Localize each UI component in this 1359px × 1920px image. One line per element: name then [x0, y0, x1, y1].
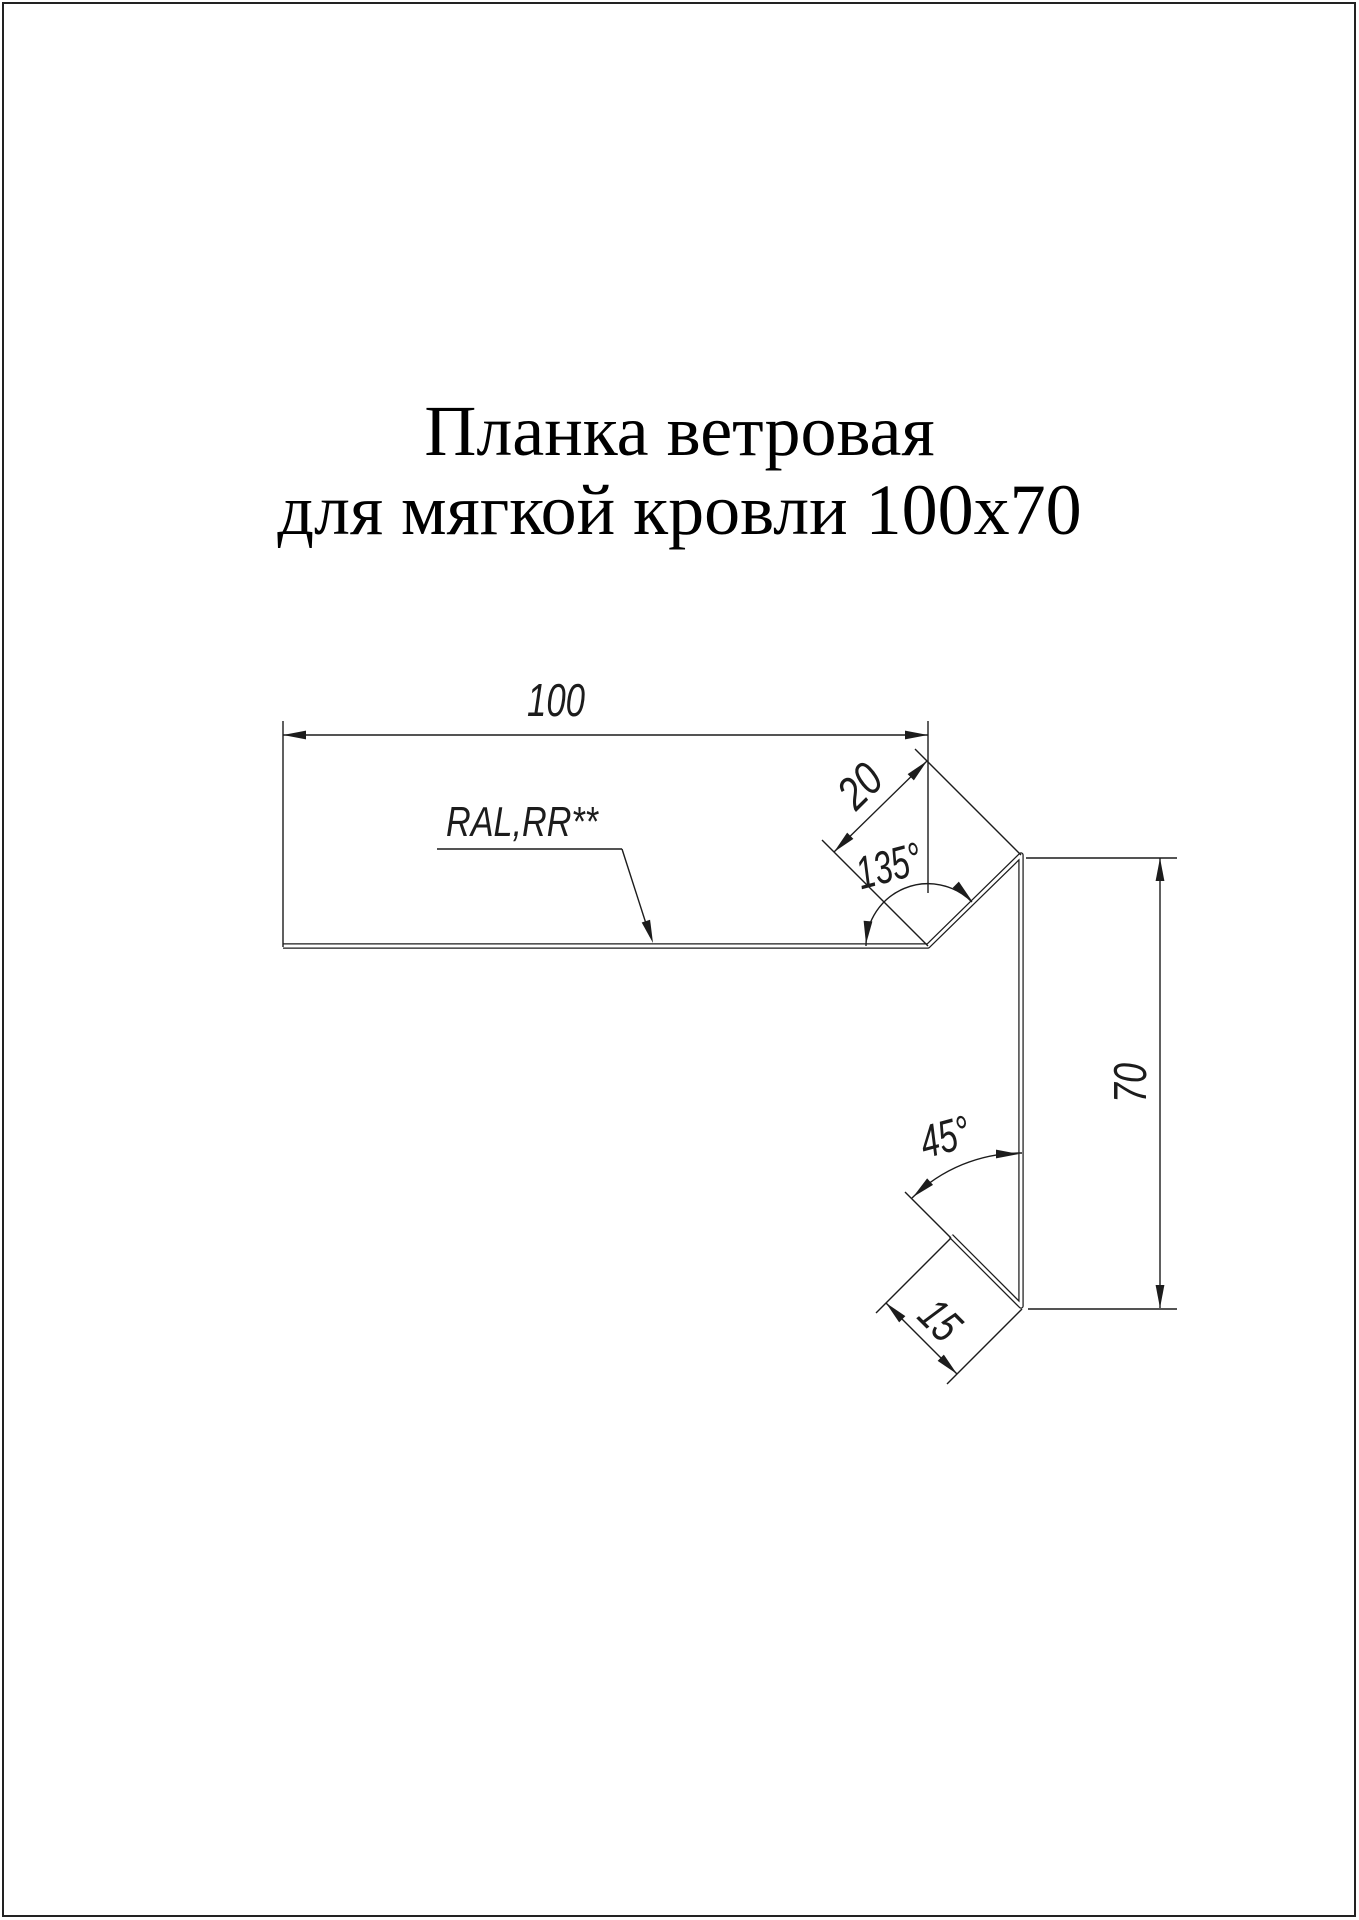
dimension-100-label: 100	[527, 674, 585, 726]
dimension-20: 20	[822, 749, 1021, 946]
angle-135: 135°	[850, 832, 975, 946]
profile-outline	[283, 855, 1021, 1306]
arrowhead	[953, 882, 975, 904]
profile-metal-outer	[283, 855, 1021, 1306]
technical-drawing: 100 20 135° 70	[0, 0, 1359, 1920]
arrowhead	[996, 1150, 1019, 1159]
arrowhead	[1156, 858, 1165, 881]
arrowhead	[1156, 1285, 1165, 1308]
coating-callout: RAL,RR**	[437, 798, 657, 944]
dimension-20-label: 20	[826, 752, 893, 819]
arrowhead	[862, 921, 873, 945]
arrowhead	[905, 731, 928, 740]
dimension-15-label: 15	[908, 1288, 972, 1352]
angle-45: 45°	[905, 1105, 1022, 1238]
dimension-70: 70	[1026, 858, 1177, 1309]
arrowhead	[883, 1300, 905, 1322]
dimension-100: 100	[283, 674, 928, 947]
dimension-70-label: 70	[1104, 1063, 1156, 1103]
extension-line	[905, 1192, 951, 1238]
arrowhead	[642, 920, 657, 945]
angle-135-label: 135°	[850, 832, 927, 899]
extension-line	[915, 749, 1021, 855]
arrowhead	[908, 758, 930, 780]
profile-metal-inner	[283, 855, 1021, 1306]
drawing-sheet: Планка ветровая для мягкой кровли 100х70…	[0, 0, 1359, 1920]
arrowhead	[938, 1355, 960, 1377]
arrowhead	[283, 731, 306, 740]
dimension-15: 15	[876, 1238, 1022, 1384]
angle-45-label: 45°	[914, 1105, 976, 1168]
coating-label: RAL,RR**	[446, 798, 599, 845]
